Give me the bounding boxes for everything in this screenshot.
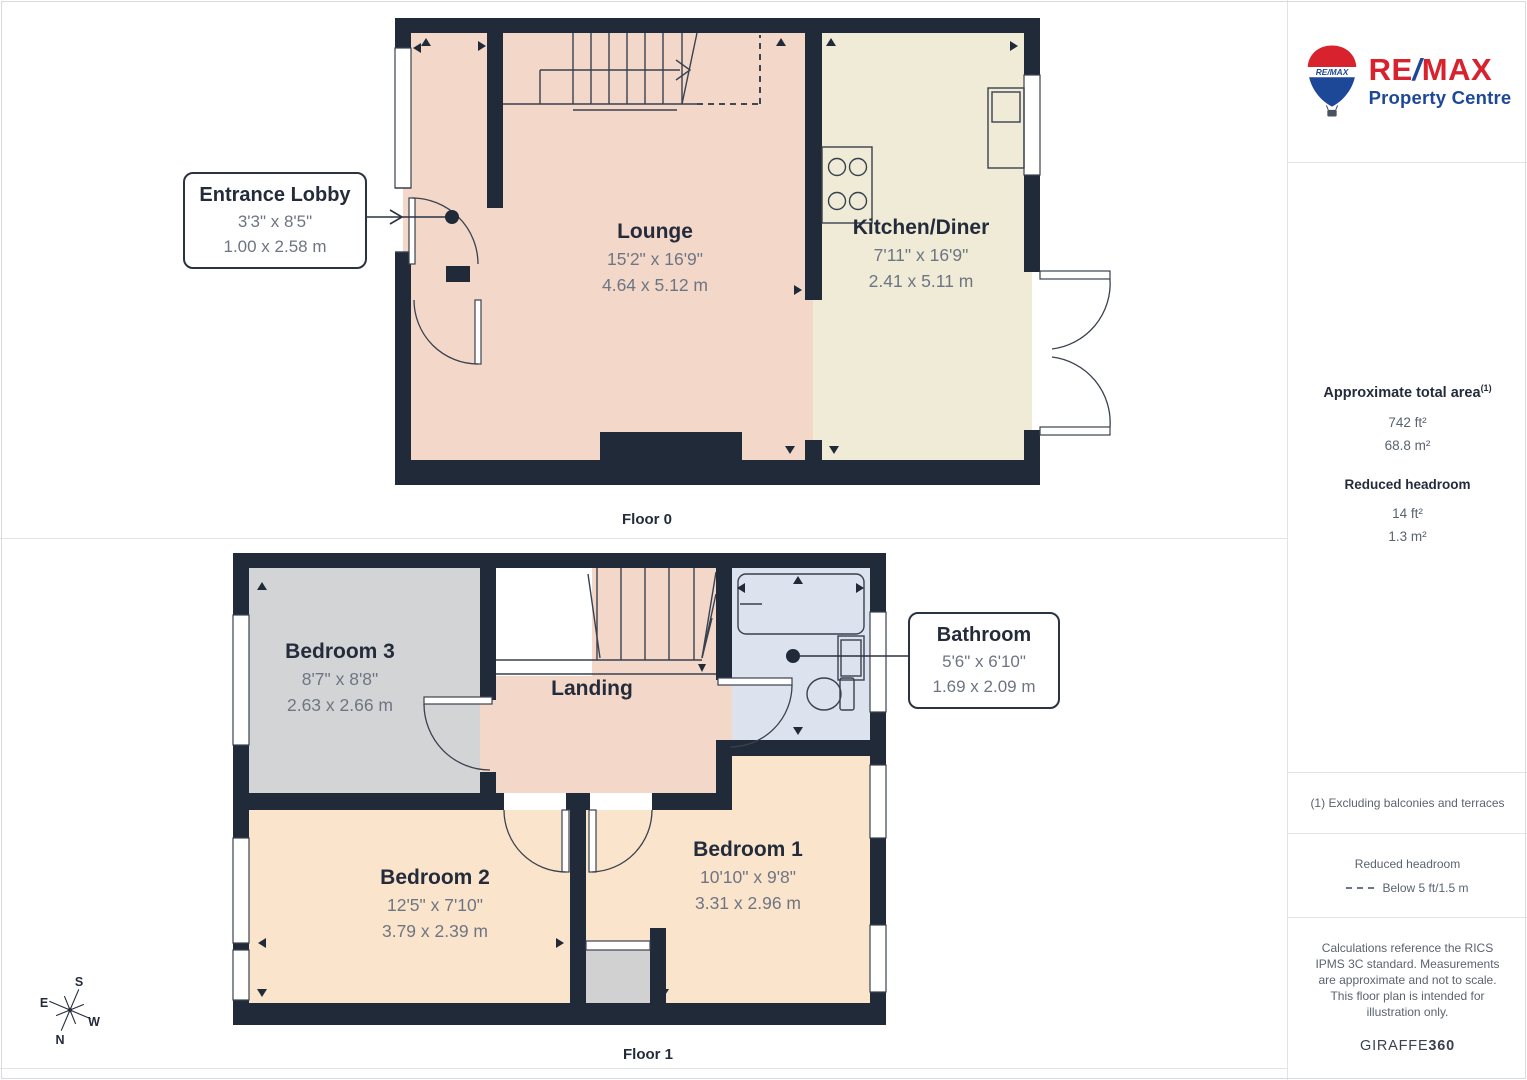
- room-label-bedroom3: Bedroom 3 8'7" x 8'8" 2.63 x 2.66 m: [285, 638, 395, 718]
- legend-section: Reduced headroom Below 5 ft/1.5 m: [1288, 833, 1527, 917]
- remax-wordmark: RE/MAX Property Centre: [1369, 54, 1512, 108]
- footnote-text: (1) Excluding balconies and terraces: [1310, 796, 1504, 810]
- french-doors: [1040, 271, 1110, 435]
- compass-north-label: N: [55, 1033, 64, 1047]
- compass-east-label: E: [40, 996, 48, 1010]
- window-bedroom1-b: [870, 925, 886, 992]
- room-label-kitchen: Kitchen/Diner 7'11" x 16'9" 2.41 x 5.11 …: [853, 214, 990, 294]
- callout-entrance-lobby: Entrance Lobby 3'3" x 8'5" 1.00 x 2.58 m: [183, 172, 367, 269]
- floor1-label: Floor 1: [623, 1046, 673, 1063]
- floorplan-area: Lounge 15'2" x 16'9" 4.64 x 5.12 m Kitch…: [0, 0, 1287, 1080]
- total-area-footnote-marker: (1): [1481, 383, 1492, 393]
- giraffe360-logo: GIRAFFE360: [1304, 1038, 1511, 1054]
- bathroom-callout-dot: [786, 649, 800, 663]
- sidebar: RE/MAX RE/MAX Property Centre Approximat…: [1287, 0, 1527, 1080]
- lobby-callout-dot: [445, 210, 459, 224]
- floor0-label: Floor 0: [622, 511, 672, 528]
- balloon-text: RE/MAX: [1315, 67, 1348, 77]
- window-kitchen: [1024, 75, 1040, 175]
- wordmark-max: MAX: [1422, 52, 1492, 87]
- compass-icon: S N E W: [30, 960, 130, 1070]
- disclaimer-text: Calculations reference the RICS IPMS 3C …: [1308, 940, 1508, 1020]
- window-bathroom: [870, 612, 886, 712]
- bottom-divider: [0, 1068, 1287, 1069]
- wordmark-tagline: Property Centre: [1369, 89, 1512, 108]
- room-label-landing: Landing: [551, 675, 633, 703]
- total-area-m: 68.8 m²: [1288, 438, 1527, 453]
- floor1-plan: [225, 545, 925, 1030]
- reduced-headroom-m: 1.3 m²: [1288, 529, 1527, 544]
- reduced-headroom-title: Reduced headroom: [1288, 477, 1527, 492]
- callout-bathroom: Bathroom 5'6" x 6'10" 1.69 x 2.09 m: [908, 612, 1060, 709]
- dashed-line-icon: [1346, 887, 1374, 889]
- compass-west-label: W: [88, 1015, 100, 1029]
- room-label-lounge: Lounge 15'2" x 16'9" 4.64 x 5.12 m: [602, 218, 708, 298]
- footnote-section: (1) Excluding balconies and terraces: [1288, 772, 1527, 833]
- room-label-bedroom2: Bedroom 2 12'5" x 7'10" 3.79 x 2.39 m: [380, 864, 490, 944]
- compass-south-label: S: [75, 975, 83, 989]
- legend-title: Reduced headroom: [1355, 857, 1460, 871]
- window-bedroom2-a: [233, 838, 249, 943]
- floor-divider: [0, 538, 1287, 539]
- wordmark-slash: /: [1413, 52, 1422, 87]
- area-summary: Approximate total area(1) 742 ft² 68.8 m…: [1288, 383, 1527, 544]
- window-lobby: [395, 48, 411, 188]
- legend-label: Below 5 ft/1.5 m: [1382, 881, 1468, 895]
- total-area-title: Approximate total area(1): [1288, 383, 1527, 401]
- room-label-bedroom1: Bedroom 1 10'10" x 9'8" 3.31 x 2.96 m: [693, 836, 803, 916]
- remax-balloon-icon: RE/MAX: [1304, 43, 1360, 119]
- reduced-headroom-ft: 14 ft²: [1288, 506, 1527, 521]
- window-bedroom2-b: [233, 950, 249, 1000]
- window-bedroom1-a: [870, 765, 886, 838]
- floor0-plan: [355, 12, 1120, 487]
- total-area-ft: 742 ft²: [1288, 415, 1527, 430]
- disclaimer-section: Calculations reference the RICS IPMS 3C …: [1288, 917, 1527, 1080]
- remax-logo: RE/MAX RE/MAX Property Centre: [1288, 0, 1527, 163]
- cupboard-door: [586, 941, 650, 950]
- window-bedroom3: [233, 615, 249, 745]
- wordmark-re: RE: [1369, 52, 1413, 87]
